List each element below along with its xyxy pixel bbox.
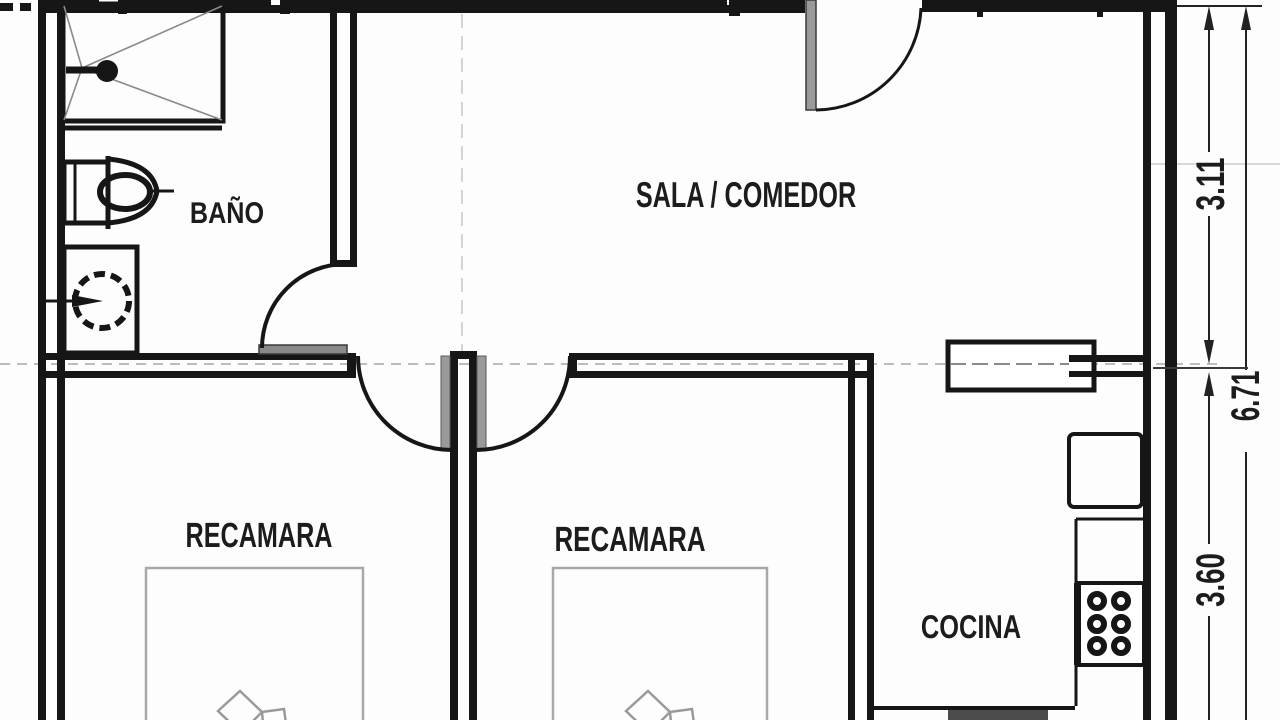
svg-text:RECAMARA: RECAMARA bbox=[554, 520, 705, 559]
svg-text:3.60: 3.60 bbox=[1189, 553, 1233, 607]
svg-text:COCINA: COCINA bbox=[921, 608, 1021, 645]
svg-text:3.11: 3.11 bbox=[1189, 158, 1233, 211]
svg-text:SALA / COMEDOR: SALA / COMEDOR bbox=[636, 174, 856, 215]
svg-text:RECAMARA: RECAMARA bbox=[186, 516, 333, 555]
svg-text:BAÑO: BAÑO bbox=[190, 196, 264, 230]
svg-text:6.71: 6.71 bbox=[1224, 371, 1268, 422]
